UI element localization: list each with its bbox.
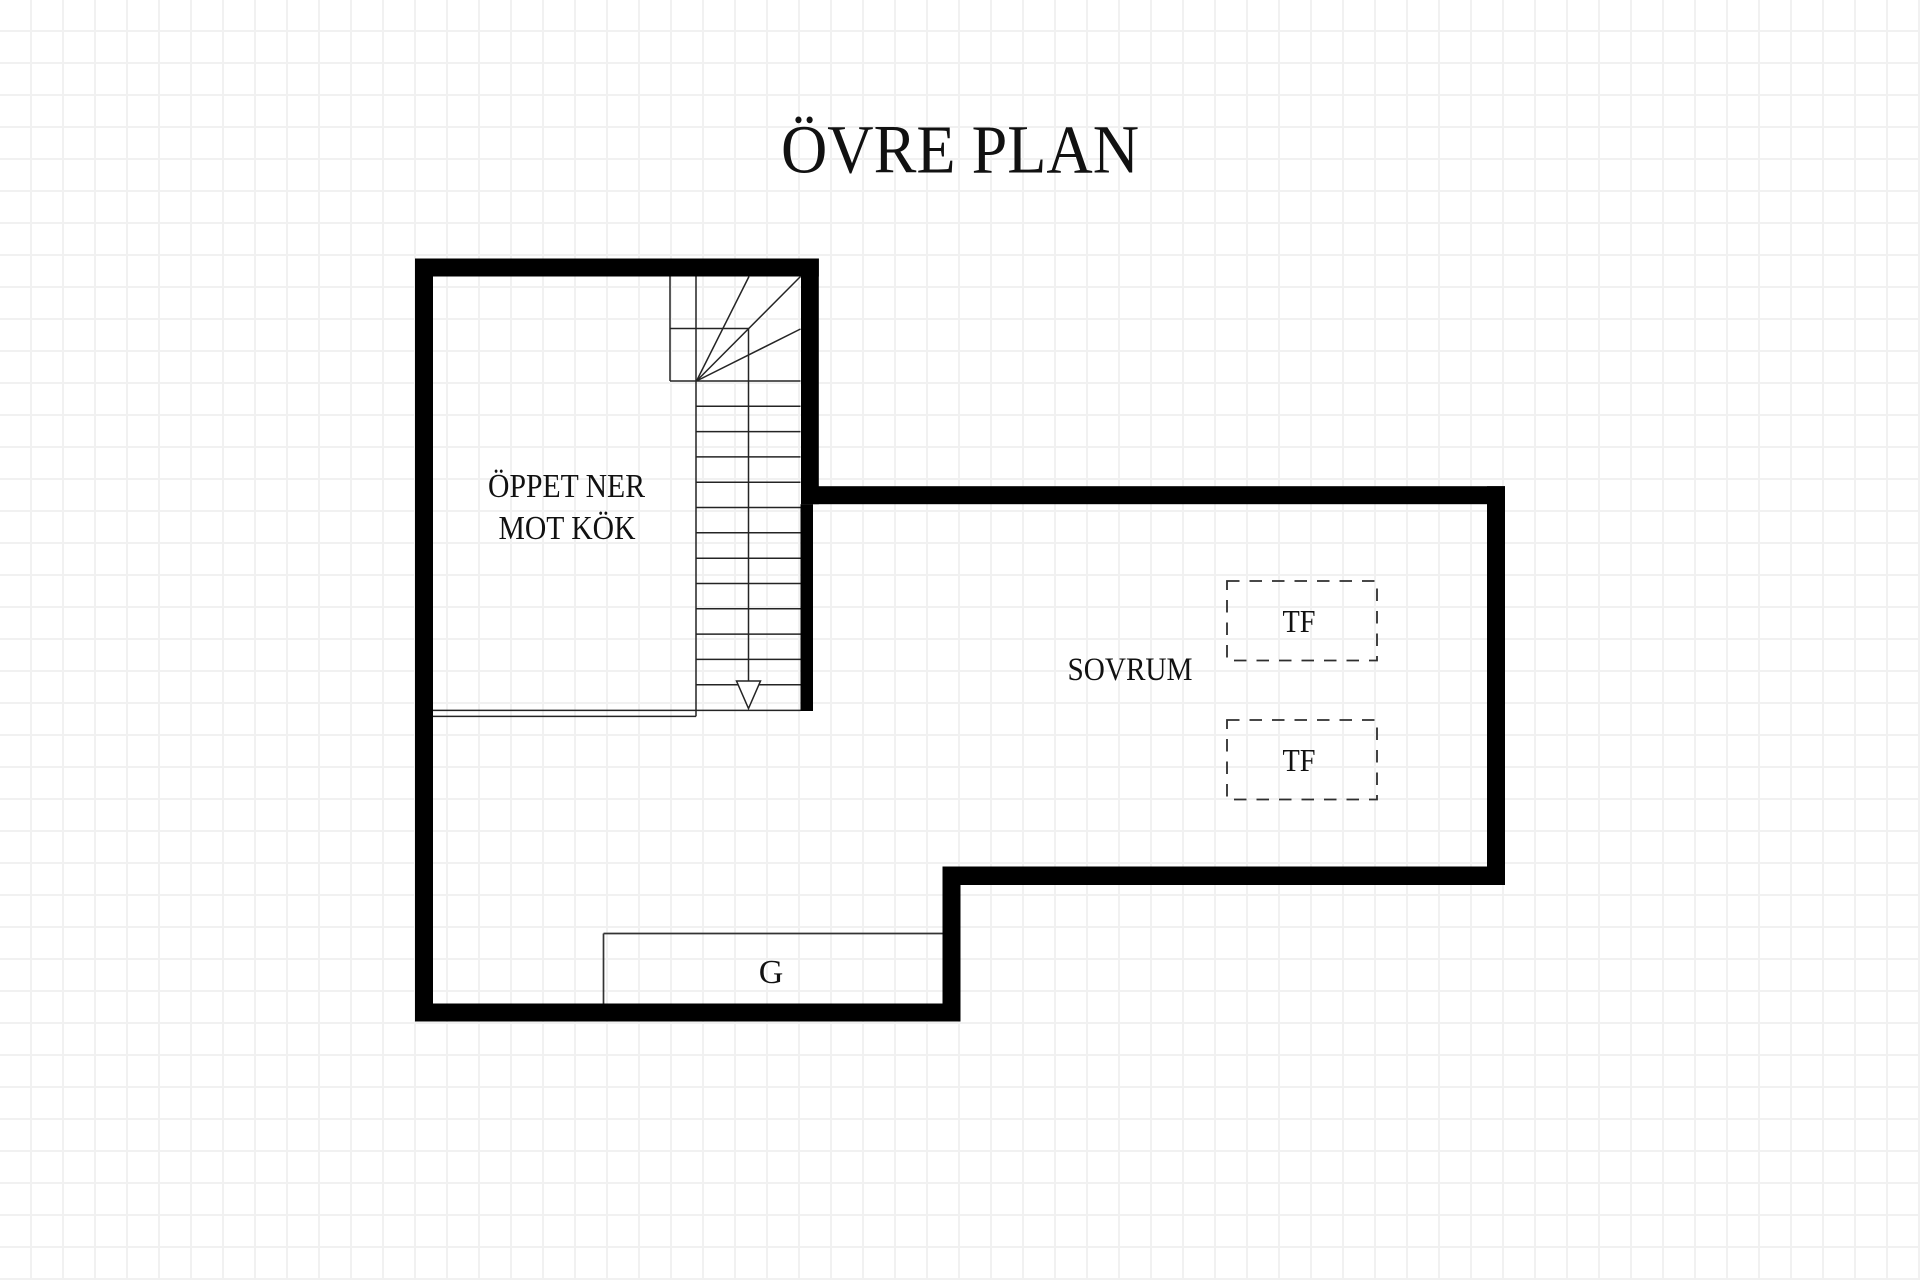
- svg-text:ÖPPET NER: ÖPPET NER: [488, 468, 645, 505]
- svg-text:MOT KÖK: MOT KÖK: [499, 510, 636, 547]
- svg-text:TF: TF: [1283, 603, 1316, 639]
- svg-text:G: G: [759, 954, 784, 991]
- svg-text:SOVRUM: SOVRUM: [1068, 652, 1193, 688]
- svg-text:TF: TF: [1283, 742, 1316, 778]
- svg-text:ÖVRE PLAN: ÖVRE PLAN: [781, 112, 1139, 188]
